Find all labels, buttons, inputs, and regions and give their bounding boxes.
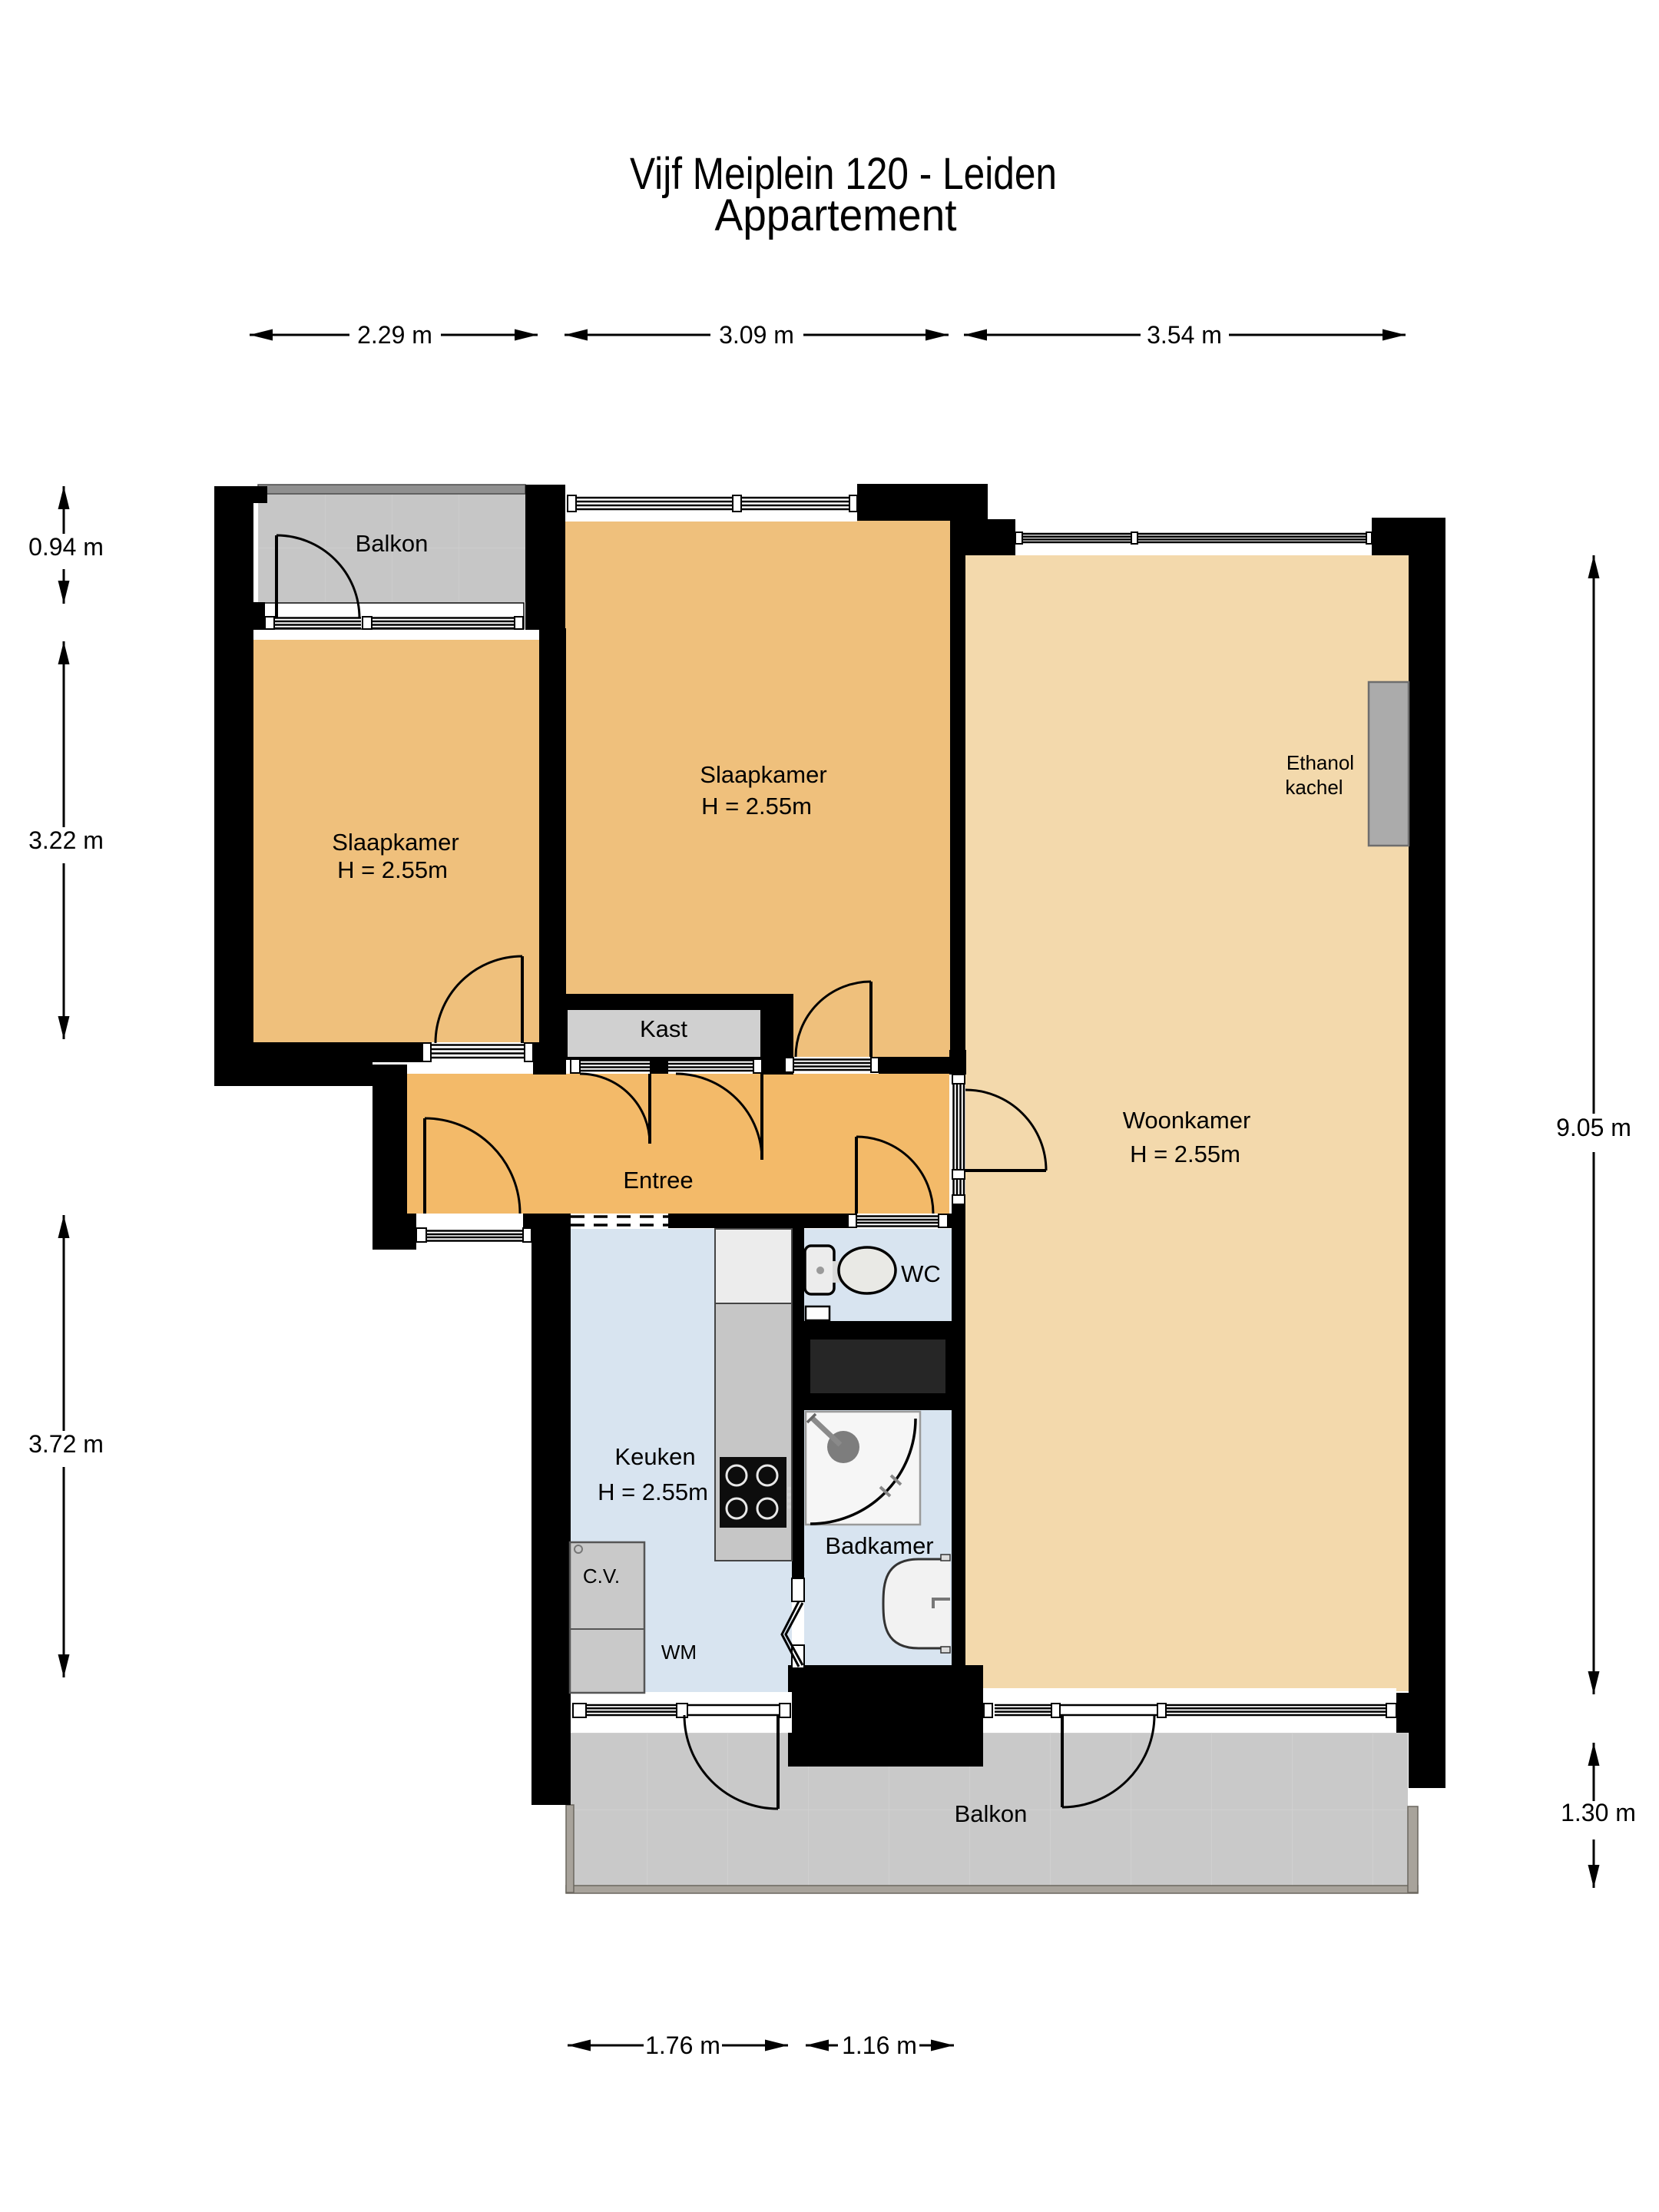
svg-text:Keuken: Keuken — [614, 1443, 695, 1470]
svg-text:H = 2.55m: H = 2.55m — [598, 1479, 708, 1505]
svg-text:1.16 m: 1.16 m — [842, 2032, 917, 2059]
svg-text:Badkamer: Badkamer — [825, 1532, 933, 1559]
svg-text:Kast: Kast — [640, 1015, 687, 1042]
svg-text:Balkon: Balkon — [356, 530, 429, 557]
svg-text:3.72 m: 3.72 m — [28, 1430, 104, 1458]
svg-text:Balkon: Balkon — [955, 1800, 1028, 1827]
svg-text:Slaapkamer: Slaapkamer — [700, 761, 826, 788]
svg-text:3.54 m: 3.54 m — [1147, 321, 1222, 349]
svg-text:C.V.: C.V. — [583, 1565, 620, 1588]
svg-text:1.30 m: 1.30 m — [1561, 1799, 1636, 1826]
svg-text:H = 2.55m: H = 2.55m — [701, 793, 812, 820]
svg-text:Entree: Entree — [623, 1167, 693, 1194]
svg-text:H = 2.55m: H = 2.55m — [1130, 1141, 1240, 1167]
svg-text:0.94 m: 0.94 m — [28, 533, 104, 561]
svg-text:Appartement: Appartement — [715, 190, 957, 240]
svg-text:1.76 m: 1.76 m — [645, 2032, 720, 2059]
svg-text:Ethanol: Ethanol — [1286, 751, 1354, 774]
svg-text:2.29 m: 2.29 m — [357, 321, 432, 349]
svg-text:kachel: kachel — [1285, 776, 1343, 799]
svg-text:WM: WM — [661, 1641, 697, 1664]
svg-text:3.09 m: 3.09 m — [719, 321, 794, 349]
svg-text:H = 2.55m: H = 2.55m — [337, 856, 448, 883]
svg-text:Woonkamer: Woonkamer — [1123, 1107, 1251, 1134]
svg-text:WC: WC — [901, 1260, 941, 1287]
svg-text:Slaapkamer: Slaapkamer — [332, 829, 459, 856]
svg-text:3.22 m: 3.22 m — [28, 826, 104, 854]
svg-text:9.05 m: 9.05 m — [1556, 1114, 1631, 1141]
